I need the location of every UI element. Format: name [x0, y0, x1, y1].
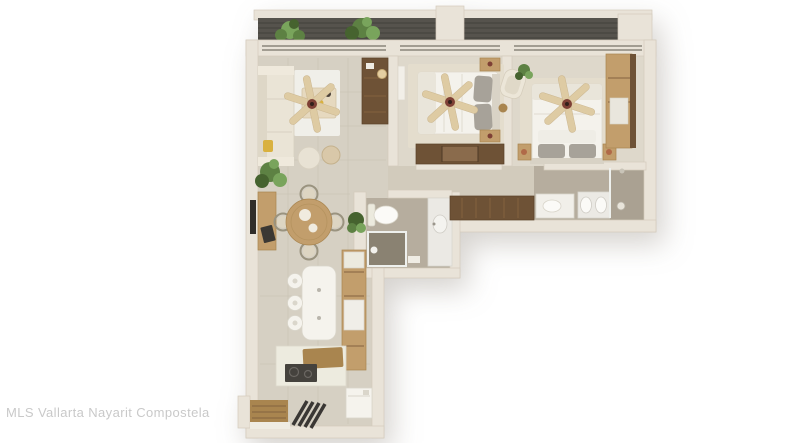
right-wall: [644, 40, 656, 232]
plate: [299, 209, 311, 221]
lamp: [606, 149, 612, 155]
wing-right-wall: [372, 268, 384, 438]
bath2-top-wall: [388, 190, 452, 198]
yellow-pillow: [263, 140, 273, 152]
media-cabinet: [362, 58, 388, 124]
wardrobe: [606, 54, 636, 148]
pillow: [538, 144, 565, 158]
watermark-text: MLS Vallarta Nayarit Compostela: [6, 405, 210, 420]
sink: [596, 197, 607, 213]
bottom-wall-right: [450, 220, 656, 232]
shower-stool: [617, 202, 625, 210]
balcony: [254, 6, 652, 44]
bathtub-vanity: [536, 194, 574, 218]
headboard: [492, 74, 500, 132]
shower-head: [620, 169, 625, 174]
towel: [543, 200, 561, 212]
nightstand: [518, 144, 531, 160]
apartment-building: [238, 6, 656, 438]
balcony-column: [618, 14, 652, 44]
vanity-sink: [428, 198, 452, 266]
floor-plan-render: [0, 0, 788, 443]
decor: [366, 63, 374, 69]
bath2-bottom-wall: [354, 268, 460, 278]
bar-stool: [288, 316, 303, 331]
kitchen-island: [302, 266, 336, 340]
door-threshold: [250, 422, 290, 429]
left-wall: [246, 40, 258, 438]
pillow: [538, 130, 596, 143]
washer: [346, 388, 372, 418]
bath-mat: [408, 256, 420, 263]
wicker-pouf: [322, 146, 340, 164]
entry-step: [238, 396, 250, 428]
wall-tv: [250, 200, 256, 234]
double-sink-vanity: [578, 192, 610, 218]
plate: [309, 224, 318, 233]
bar-stool: [288, 274, 303, 289]
nightstand: [480, 130, 500, 142]
master-shower-floor: [610, 166, 646, 220]
shower: [368, 232, 406, 266]
sofa: [258, 66, 294, 166]
lamp: [521, 149, 527, 155]
hallway-closet: [450, 196, 534, 220]
pillow: [569, 144, 596, 158]
pouf: [298, 147, 320, 169]
headboard: [530, 158, 604, 164]
floor-plan-stage: MLS Vallarta Nayarit Compostela: [0, 0, 788, 443]
nightstand: [480, 58, 500, 71]
pillow: [473, 75, 493, 102]
living-bedroom2-wall: [388, 56, 398, 166]
top-wall: [246, 40, 656, 56]
entry-mat: [250, 400, 290, 429]
sink: [581, 197, 592, 213]
shower-drain: [371, 247, 378, 254]
balcony-column: [436, 6, 464, 44]
round-dining-table: [286, 199, 332, 245]
dresser: [416, 144, 504, 164]
cooktop-counter: [276, 346, 346, 386]
side-table: [499, 104, 508, 113]
fridge: [344, 300, 364, 330]
bar-stool: [288, 296, 303, 311]
floor-lamp: [378, 70, 387, 79]
door-leaf: [398, 66, 405, 100]
